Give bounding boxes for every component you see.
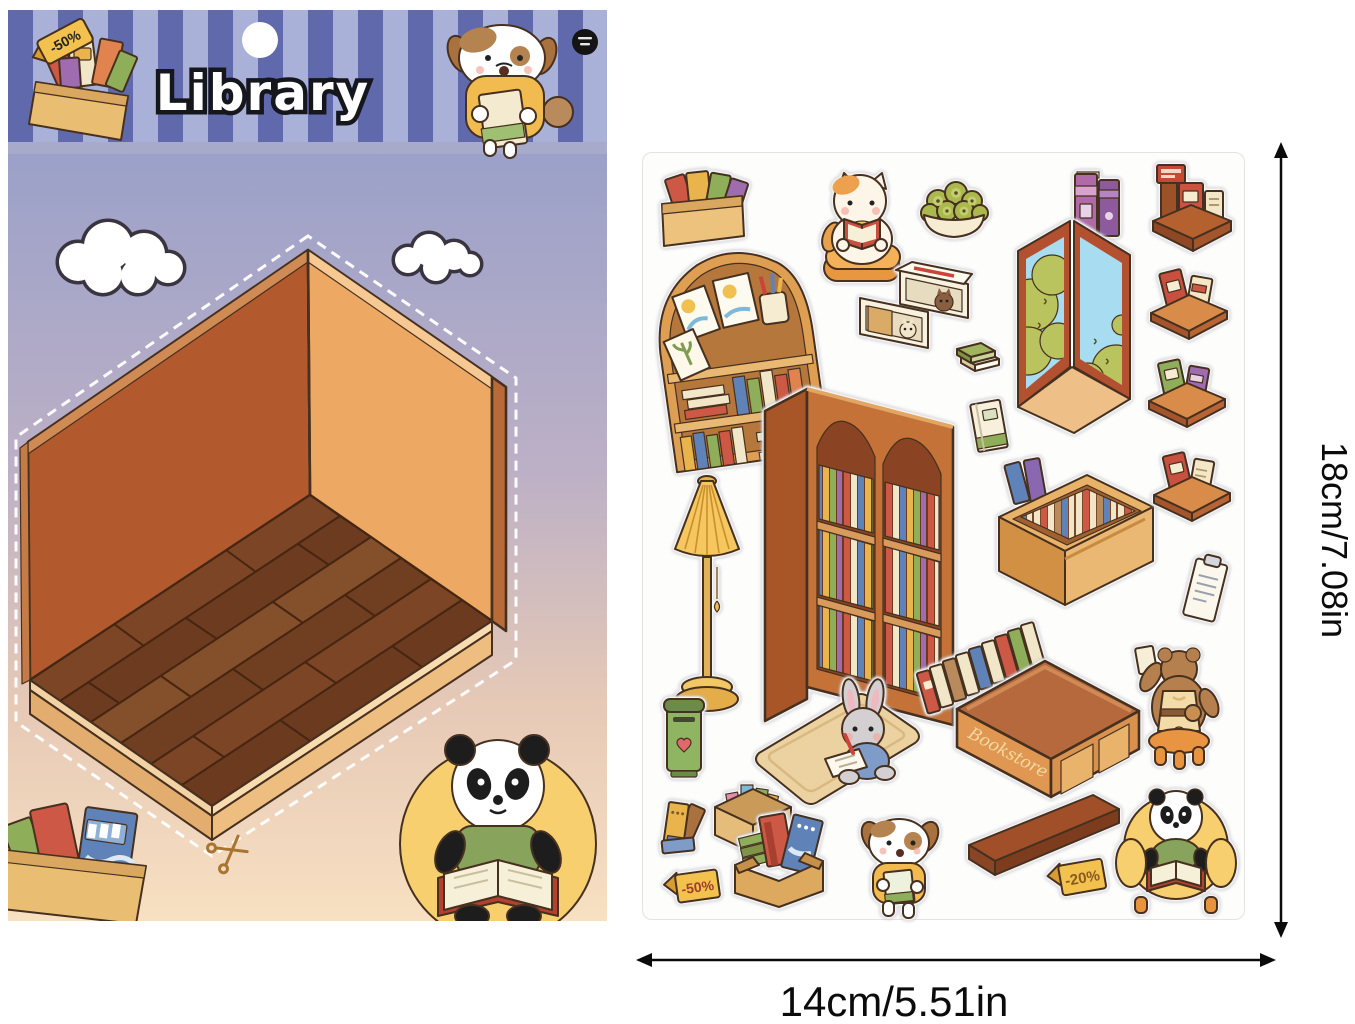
width-label: 14cm/5.51in (780, 978, 1009, 1024)
sticker-sheet: Bookstore (642, 152, 1245, 920)
arrow-right-icon (1260, 953, 1276, 967)
arrow-left-icon (636, 953, 652, 967)
sticker-box-of-books (656, 166, 748, 254)
hanging-hole (242, 22, 278, 58)
sticker-book-pile (656, 801, 708, 859)
sticker-shelf-2 (1147, 349, 1227, 435)
sticker-mailbox (661, 691, 707, 781)
brand-badge (572, 29, 598, 55)
arrow-down-icon (1274, 922, 1288, 938)
sticker-window-view (1014, 219, 1134, 435)
sticker-floor-lamp (661, 473, 753, 723)
sticker-shelf-1 (1147, 257, 1231, 349)
height-dimension: 18cm/7.08in (1262, 142, 1355, 938)
sticker-tag-50: -50% (661, 865, 721, 915)
backing-card: Library -50% (8, 10, 607, 921)
sticker-panda-chair (1109, 771, 1243, 917)
sticker-book-stand (1149, 159, 1235, 253)
sticker-dog-reading (851, 813, 947, 919)
product-image: Library -50% (0, 0, 1355, 1024)
sticker-low-shelf (991, 439, 1161, 629)
arrow-up-icon (1274, 142, 1288, 158)
card-header: Library -50% (8, 10, 607, 158)
height-label: 18cm/7.08in (1314, 442, 1355, 638)
sticker-tag-20: -20% (1041, 853, 1113, 911)
sticker-shelf-3 (1151, 441, 1233, 529)
dog-tail (543, 97, 573, 127)
card-title: Library (156, 64, 370, 122)
width-dimension: 14cm/5.51in (636, 938, 1276, 1024)
sticker-fruit-bowl (914, 173, 994, 243)
sticker-box-books2 (731, 807, 826, 907)
sticker-clipboard (1181, 553, 1229, 629)
